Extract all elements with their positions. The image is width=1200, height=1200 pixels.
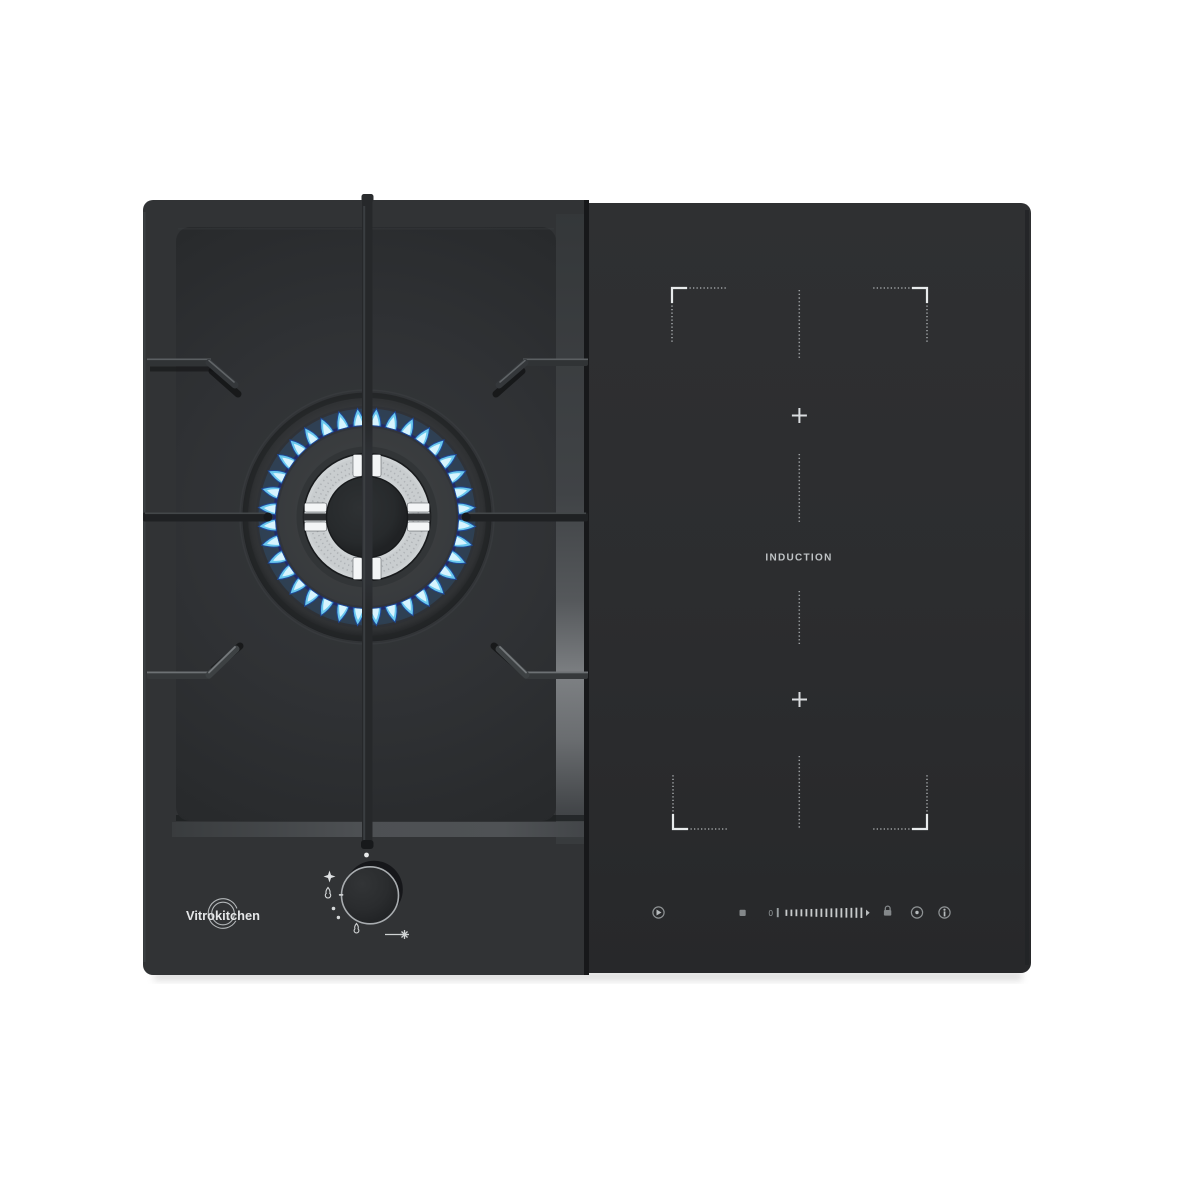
svg-text:0: 0	[769, 909, 774, 918]
svg-text:INDUCTION: INDUCTION	[765, 553, 832, 564]
svg-text:Vitrokitchen: Vitrokitchen	[186, 908, 260, 923]
